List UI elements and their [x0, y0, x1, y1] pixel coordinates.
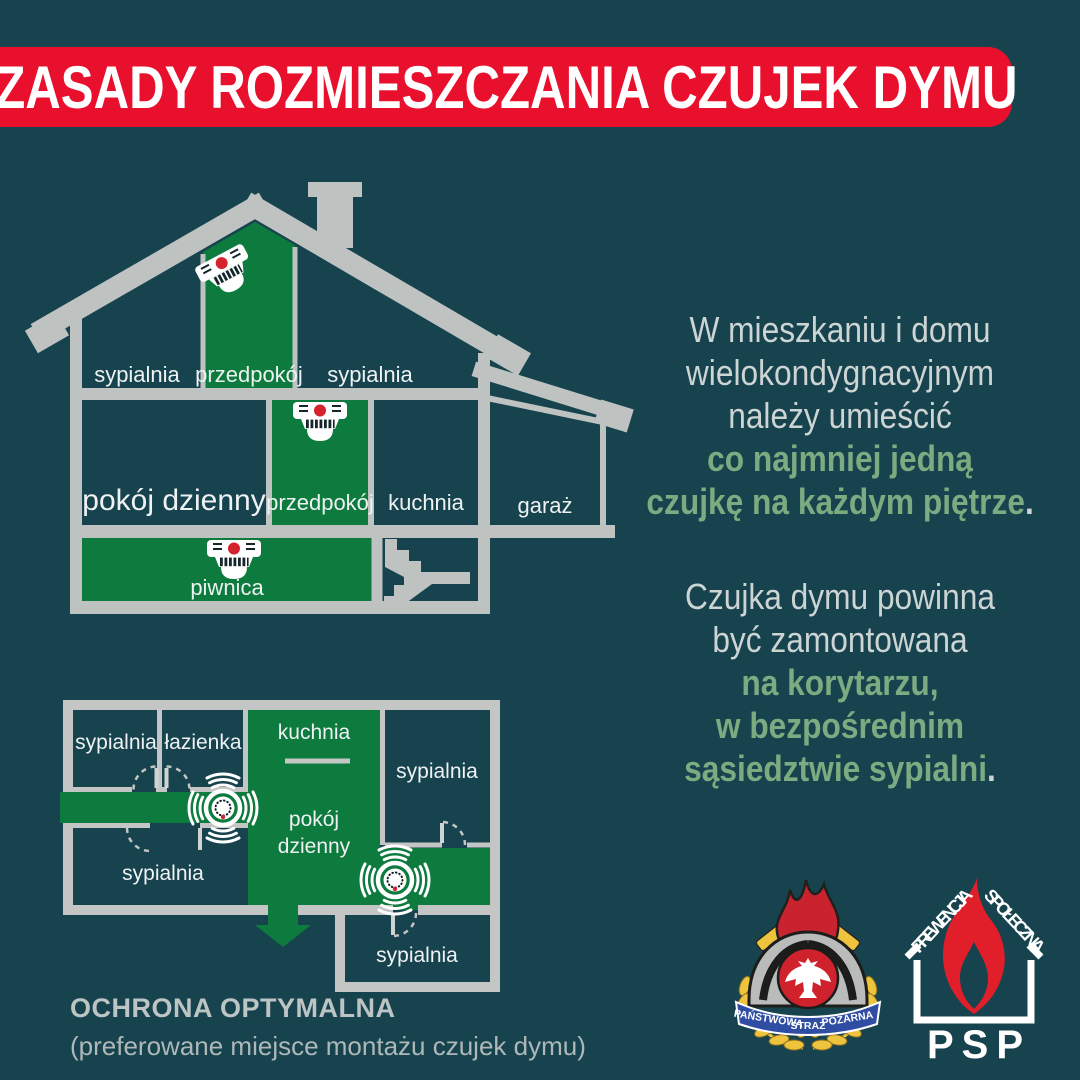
caption-title: OCHRONA OPTYMALNA [70, 993, 586, 1024]
info-line: należy umieścić [646, 394, 1033, 437]
info-line-highlight: sąsiedztwie sypialni. [646, 747, 1033, 790]
room-label: sypialnia [75, 731, 157, 754]
room-label: sypialnia [396, 760, 478, 783]
room-label: sypialnia [376, 944, 458, 967]
room-label: kuchnia [278, 721, 351, 744]
house-cross-section-diagram: sypialnia przedpokój sypialnia pokój dzi… [25, 170, 645, 640]
info-text-block: W mieszkaniu i domu wielokondygnacyjnym … [646, 308, 1033, 790]
info-line-highlight: co najmniej jedną [646, 437, 1033, 480]
paragraph-1: W mieszkaniu i domu wielokondygnacyjnym … [646, 308, 1033, 523]
info-line: wielokondygnacyjnym [646, 351, 1033, 394]
prevention-psp-text: PSP [927, 1023, 1031, 1067]
door-arc [167, 767, 190, 790]
main-floor [70, 525, 615, 538]
room-label: przedpokój [266, 490, 374, 515]
infographic-page: ZASADY ROZMIESZCZANIA CZUJEK DYMU [0, 0, 1080, 1080]
door-arc [134, 767, 157, 790]
page-title: ZASADY ROZMIESZCZANIA CZUJEK DYMU [0, 53, 1017, 122]
room-label: piwnica [190, 575, 264, 600]
info-line-highlight: czujkę na każdym piętrze. [646, 480, 1033, 523]
basement-floor [70, 601, 490, 614]
room-label: sypialnia [327, 362, 413, 387]
apartment-floor-plan: sypialnia łazienka kuchnia sypialnia pok… [60, 695, 505, 1005]
caption-block: OCHRONA OPTYMALNA (preferowane miejsce m… [70, 993, 586, 1062]
door-arc [393, 913, 416, 936]
room-label: pokój dzienny [82, 484, 265, 517]
room-label: pokój [289, 808, 339, 831]
left-wall [70, 316, 82, 614]
room-label: łazienka [164, 731, 241, 754]
paragraph-2: Czujka dymu powinna być zamontowana na k… [646, 575, 1033, 790]
room-label: garaż [517, 493, 572, 518]
caption-subtitle: (preferowane miejsce montażu czujek dymu… [70, 1031, 586, 1062]
garage-roof [481, 371, 613, 412]
info-line-highlight: w bezpośrednim [646, 704, 1033, 747]
info-line: W mieszkaniu i domu [646, 308, 1033, 351]
info-line: Czujka dymu powinna [646, 575, 1033, 618]
attic-floor [70, 388, 490, 400]
staircase-icon [384, 539, 470, 606]
info-line-highlight: na korytarzu, [646, 661, 1033, 704]
room-label: sypialnia [122, 862, 204, 885]
room-label: kuchnia [388, 490, 465, 515]
psp-crest-logo: PAŃSTWOWA STRAŻ POŻARNA [733, 876, 883, 1056]
room-label: sypialnia [94, 362, 180, 387]
title-banner: ZASADY ROZMIESZCZANIA CZUJEK DYMU [0, 47, 1012, 127]
prewencja-spoleczna-logo: PREWENCJA SPOŁECZNA PSP [893, 868, 1053, 1073]
room-label: dzienny [278, 835, 351, 858]
room-label: przedpokój [195, 362, 303, 387]
chimney-cap [308, 182, 362, 197]
door-arc [127, 828, 150, 851]
info-line: być zamontowana [646, 618, 1033, 661]
door-arc [442, 822, 465, 845]
